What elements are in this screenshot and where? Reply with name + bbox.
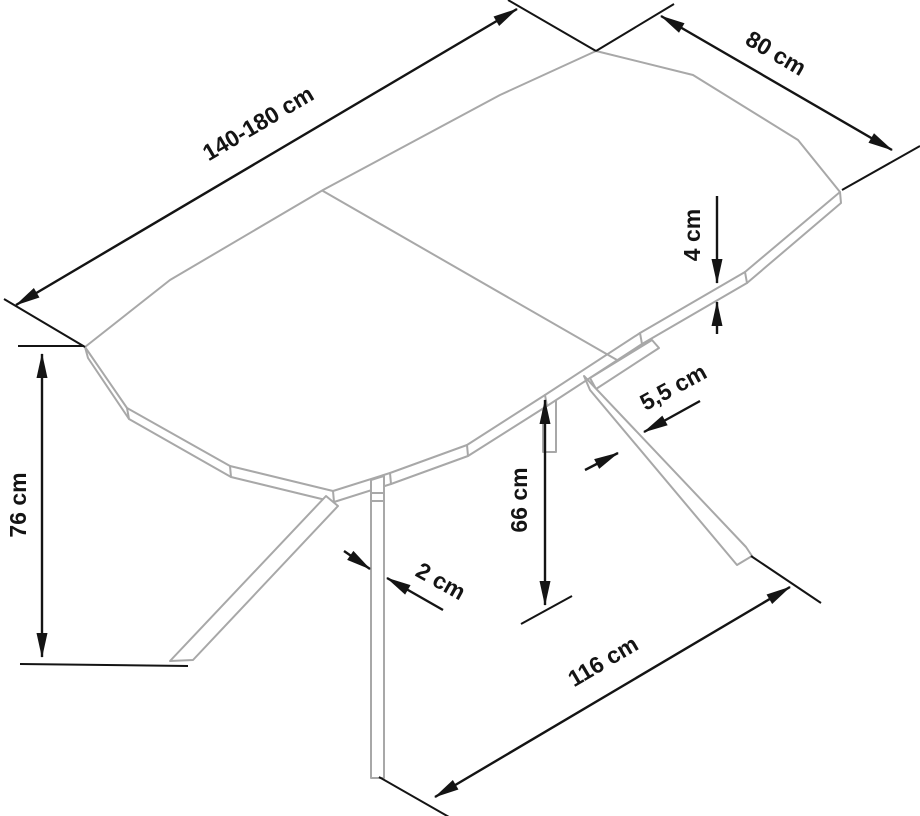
tabletop-outline <box>85 51 841 502</box>
front-vertical-leg <box>371 476 384 778</box>
extension-line <box>596 4 674 51</box>
table-drawing <box>85 51 841 778</box>
tabletop <box>85 51 841 502</box>
extension-line <box>379 777 456 816</box>
dim-label-height: 76 cm <box>5 472 31 537</box>
dimension-drawing-canvas: 140-180 cm 80 cm 4 cm 76 cm 66 cm 5,5 cm… <box>0 0 920 816</box>
floor-tick <box>521 596 572 624</box>
dim-label-leg-width: 5,5 cm <box>636 358 711 415</box>
dim-label-end-width: 80 cm <box>741 25 810 80</box>
extension-line <box>4 299 85 347</box>
dim-label-length: 140-180 cm <box>198 80 318 165</box>
extension-line <box>842 146 920 190</box>
dimension-front-leg-thickness: 2 cm <box>344 551 470 610</box>
table-dimension-diagram: 140-180 cm 80 cm 4 cm 76 cm 66 cm 5,5 cm… <box>0 0 920 816</box>
dim-label-clearance: 66 cm <box>506 467 532 532</box>
dimension-clearance: 66 cm <box>506 400 572 624</box>
front-left-leg <box>170 496 338 661</box>
extension-line <box>751 556 821 603</box>
dim-label-top-thickness: 4 cm <box>679 209 705 261</box>
extension-line <box>508 0 596 51</box>
dimension-arrow <box>585 453 618 470</box>
extension-line <box>20 664 188 666</box>
dimension-arrow <box>344 551 370 569</box>
dimension-arrow <box>435 587 790 797</box>
